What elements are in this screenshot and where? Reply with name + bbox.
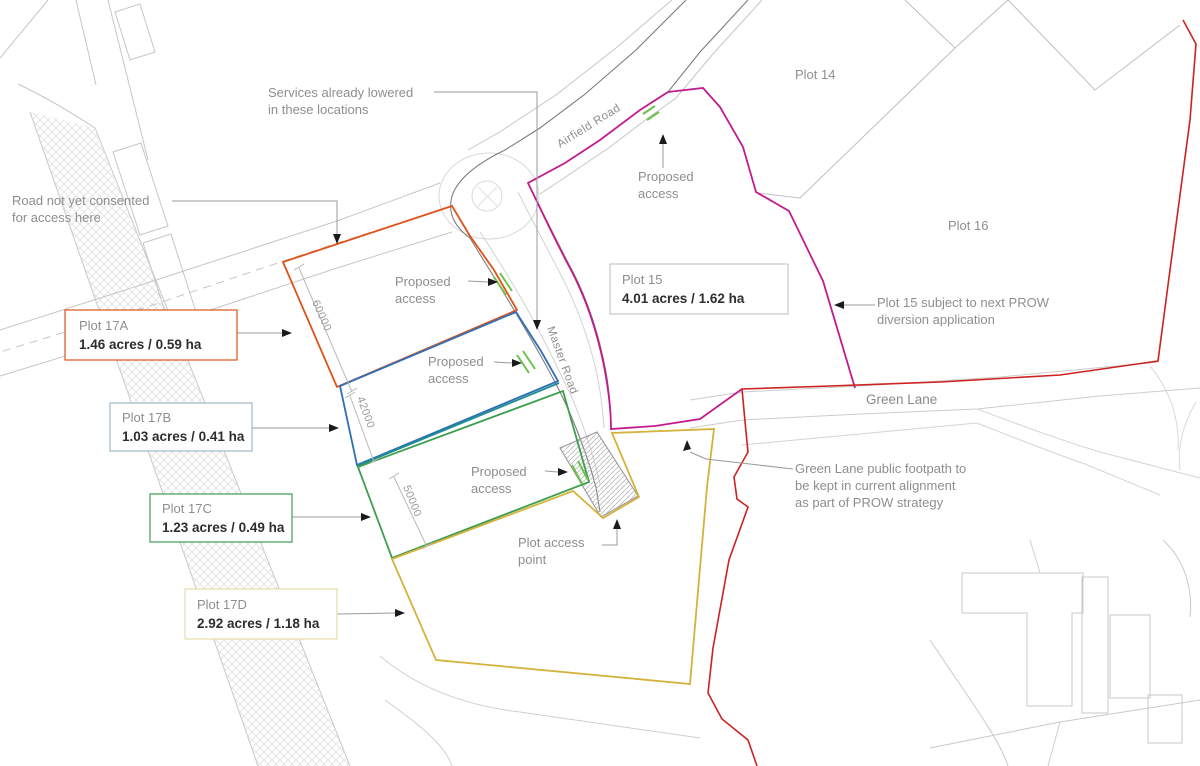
access-tick-17b bbox=[517, 351, 535, 373]
plot-17d-name: Plot 17D bbox=[197, 597, 247, 612]
leader-access3 bbox=[545, 471, 558, 472]
plot-15-label-box: Plot 15 4.01 acres / 1.62 ha bbox=[610, 264, 788, 314]
site-plan-svg: 60000 42000 50000 bbox=[0, 0, 1200, 766]
plot-17c-label-box: Plot 17C 1.23 acres / 0.49 ha bbox=[150, 494, 292, 542]
plot-14-label: Plot 14 bbox=[795, 67, 835, 82]
airfield-road-nw-edge bbox=[451, 0, 686, 238]
plot-17d-boundary bbox=[392, 429, 714, 684]
footpath-note: Green Lane public footpath to be kept in… bbox=[795, 461, 970, 510]
proposed-access-note-1: Proposed access bbox=[395, 274, 454, 306]
plot-17a-label-box: Plot 17A 1.46 acres / 0.59 ha bbox=[65, 310, 237, 360]
proposed-access-note-2: Proposed access bbox=[428, 354, 487, 386]
proposed-access-note-4: Proposed access bbox=[638, 169, 697, 201]
plot-boundaries bbox=[283, 20, 1196, 766]
services-note: Services already lowered in these locati… bbox=[268, 85, 417, 117]
plot-17b-boundary bbox=[340, 312, 558, 465]
site-plan-drawing: 60000 42000 50000 bbox=[0, 0, 1200, 766]
plot-access-point-note: Plot access point bbox=[518, 535, 588, 567]
plot-label-boxes: Plot 17A 1.46 acres / 0.59 ha Plot 17B 1… bbox=[65, 264, 788, 639]
plot-17c-area: 1.23 acres / 0.49 ha bbox=[162, 520, 285, 535]
site-boundary-red bbox=[708, 20, 1196, 766]
plot-17a-name: Plot 17A bbox=[79, 318, 128, 333]
plot-17d-area: 2.92 acres / 1.18 ha bbox=[197, 616, 320, 631]
leader-plot-access bbox=[602, 529, 617, 545]
prow-note: Plot 15 subject to next PROW diversion a… bbox=[877, 295, 1053, 327]
plot-16-label: Plot 16 bbox=[948, 218, 988, 233]
road-edges bbox=[451, 0, 748, 517]
plot-17b-17c-divider bbox=[357, 383, 559, 466]
leader-access2 bbox=[494, 362, 512, 363]
dim-text-50000: 50000 bbox=[400, 484, 424, 519]
leader-footpath bbox=[690, 452, 793, 469]
green-lane-label: Green Lane bbox=[866, 392, 937, 407]
access-tick-plot15 bbox=[643, 106, 659, 120]
plot-15-area: 4.01 acres / 1.62 ha bbox=[622, 291, 745, 306]
plot-17b-name: Plot 17B bbox=[122, 410, 171, 425]
plot-17b-label-box: Plot 17B 1.03 acres / 0.41 ha bbox=[110, 403, 252, 451]
leader-access1 bbox=[468, 281, 488, 282]
plot-17b-area: 1.03 acres / 0.41 ha bbox=[122, 429, 245, 444]
plot-17d-label-box: Plot 17D 2.92 acres / 1.18 ha bbox=[185, 589, 337, 639]
dimensions: 60000 42000 50000 bbox=[294, 264, 432, 549]
leader-plot17d bbox=[337, 613, 395, 614]
plot-17a-area: 1.46 acres / 0.59 ha bbox=[79, 337, 202, 352]
proposed-access-note-3: Proposed access bbox=[471, 464, 530, 496]
plot-15-name: Plot 15 bbox=[622, 272, 662, 287]
plot-17c-name: Plot 17C bbox=[162, 501, 212, 516]
dim-text-42000: 42000 bbox=[354, 395, 377, 430]
dim-text-60000: 60000 bbox=[309, 298, 333, 333]
